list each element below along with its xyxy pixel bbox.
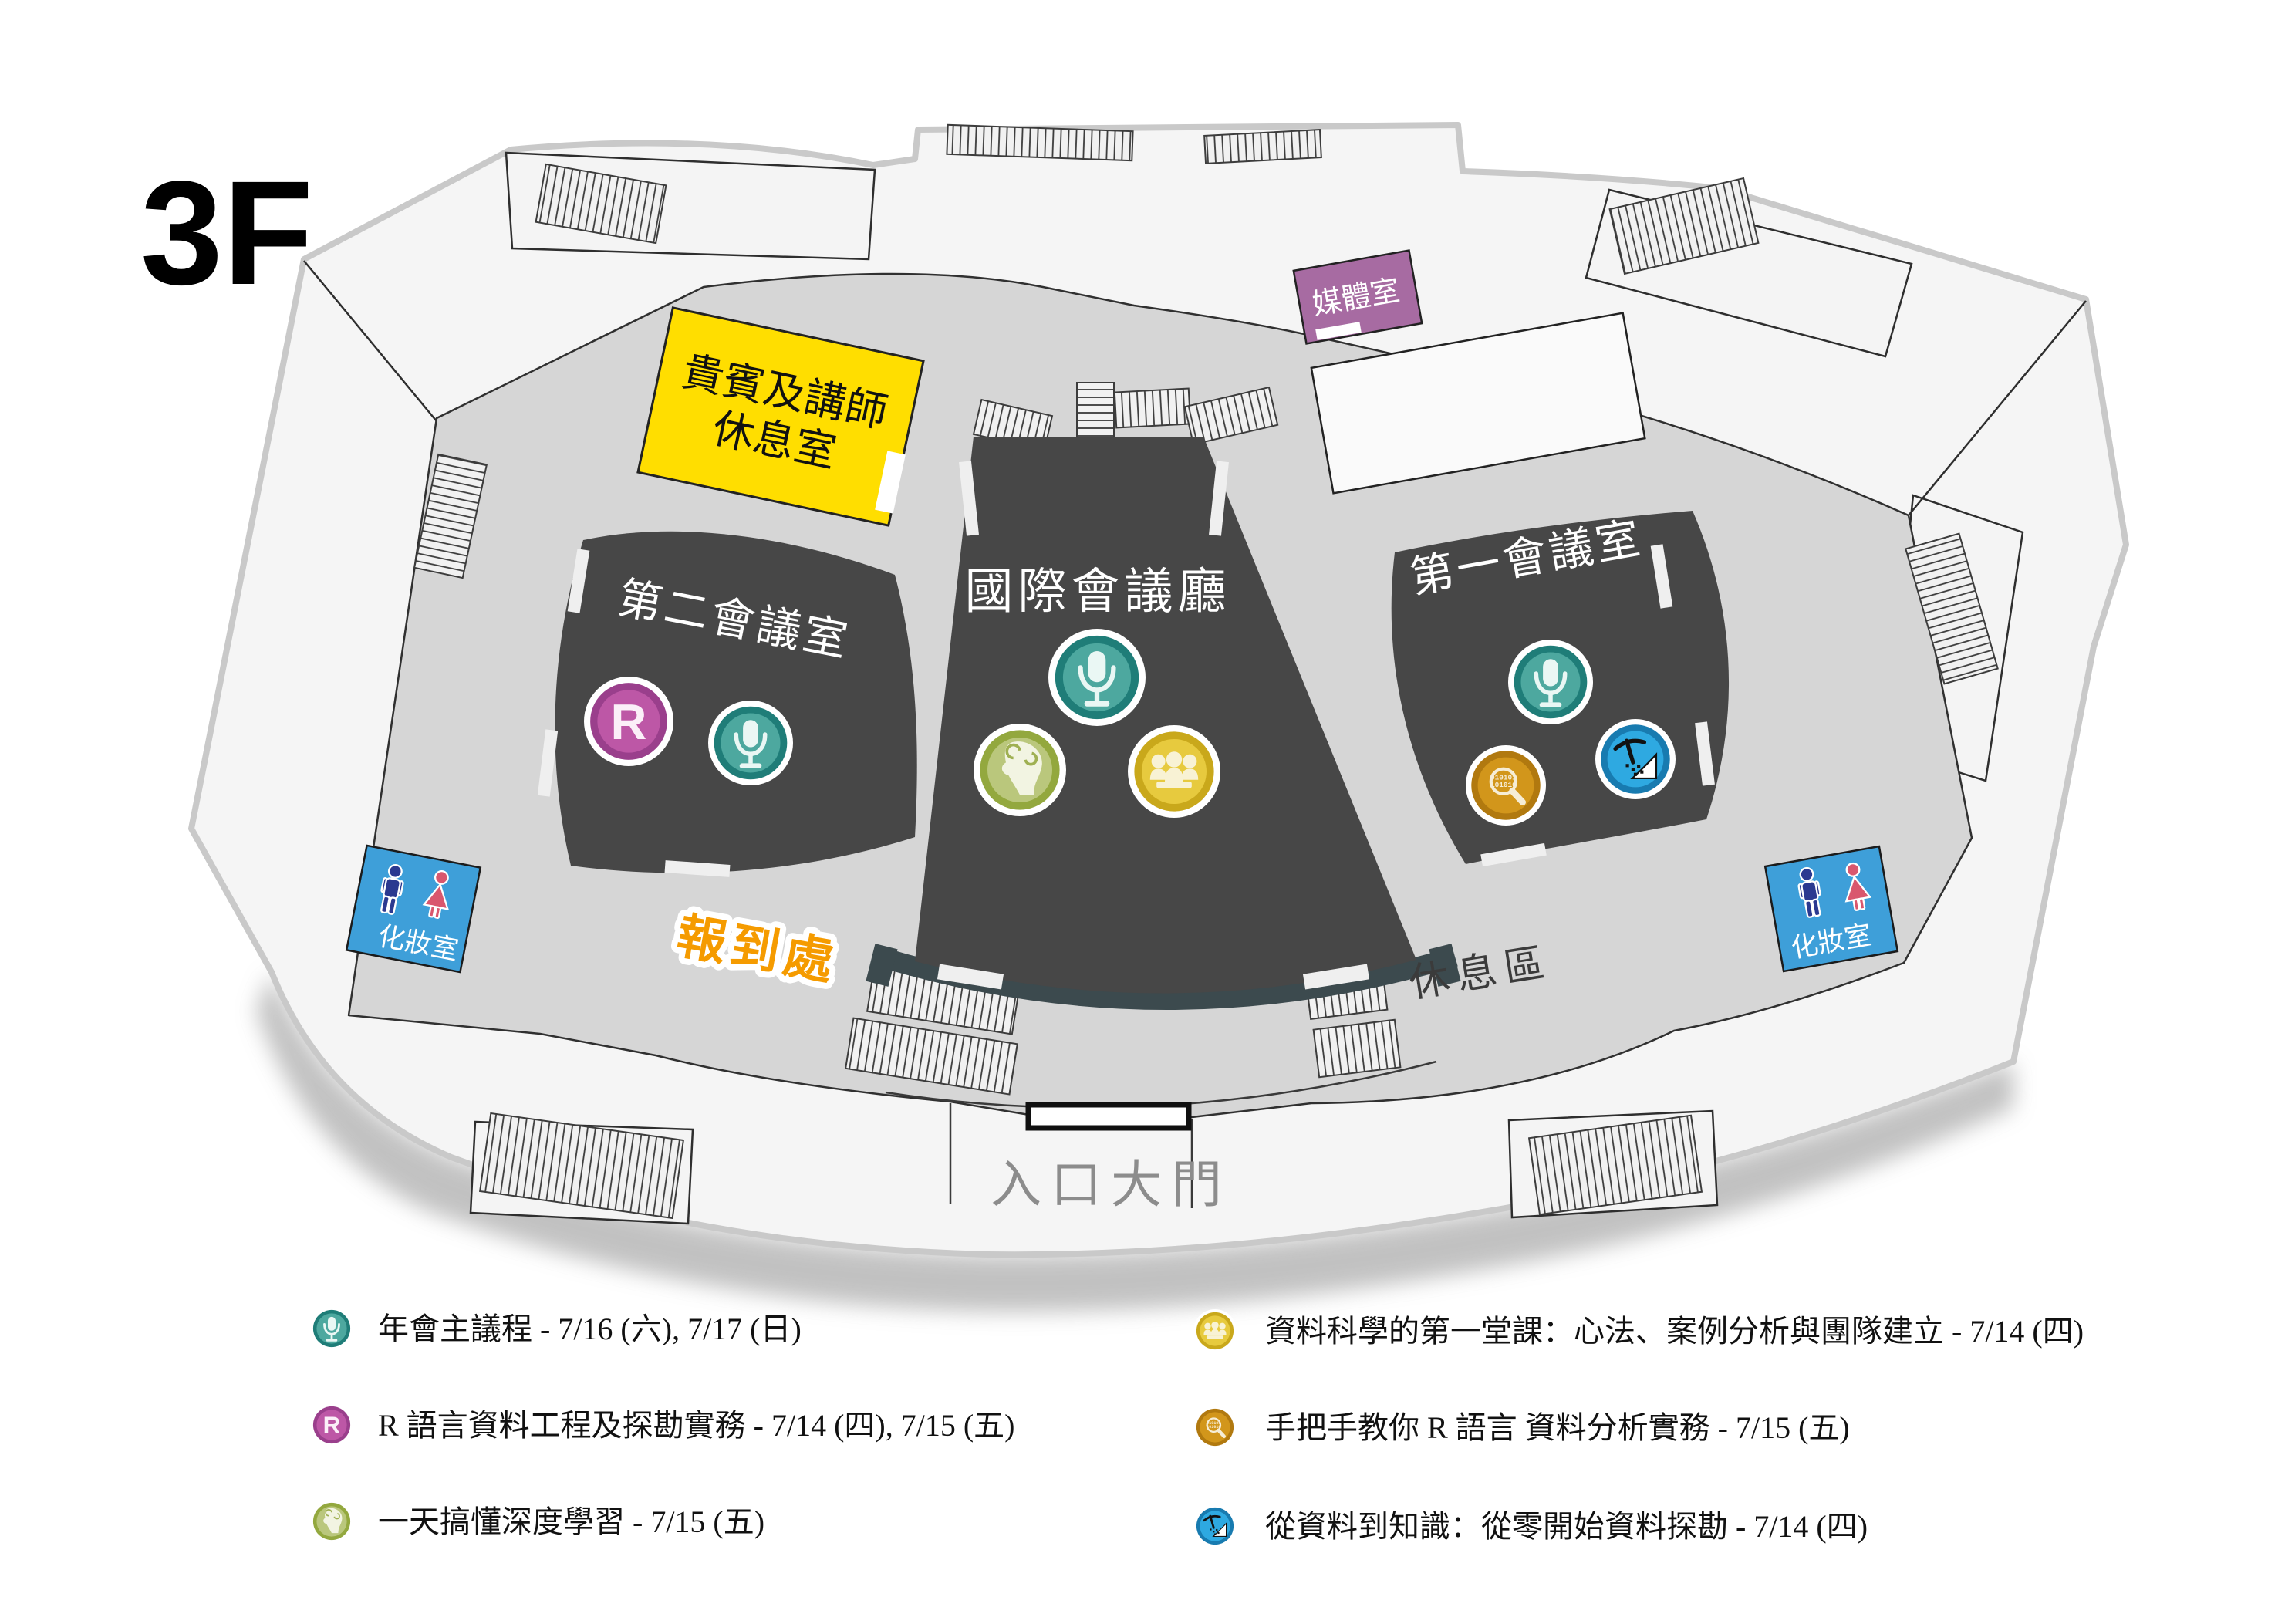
legend-mic-icon	[310, 1307, 353, 1350]
stairs-top-center-a	[947, 125, 1132, 160]
room1-mining-icon	[1595, 719, 1676, 799]
room2-mic-icon	[708, 701, 793, 785]
stairs-top-center-b	[1204, 130, 1321, 164]
stage-ladder	[1077, 383, 1114, 440]
legend-item-r-analysis: 手把手教你 R 語言 資料分析實務 - 7/15 (五)	[1193, 1406, 1850, 1449]
legend-mining-icon	[1193, 1504, 1237, 1548]
hall-brain-icon	[974, 724, 1066, 816]
legend-item-deep-learning: 一天搞懂深度學習 - 7/15 (五)	[310, 1500, 764, 1543]
room1-mic-icon	[1508, 640, 1593, 724]
restroom-right: 化妝室	[1765, 846, 1898, 971]
entrance-label: 入口大門	[991, 1156, 1231, 1213]
legend-people-icon	[1193, 1309, 1237, 1352]
legend-item-first-class: 資料科學的第一堂課：心法、案例分析與團隊建立 - 7/14 (四)	[1193, 1309, 2084, 1352]
legend-magnifier-icon	[1193, 1406, 1237, 1449]
legend-item-data-mining: 從資料到知識：從零開始資料探勘 - 7/14 (四)	[1193, 1504, 1868, 1548]
room-hall-label: 國際會議廳	[965, 565, 1231, 619]
legend-item-r-course: R 語言資料工程及探勘實務 - 7/14 (四), 7/15 (五)	[310, 1403, 1015, 1447]
legend-text-first-class: 資料科學的第一堂課：心法、案例分析與團隊建立 - 7/14 (四)	[1265, 1314, 2084, 1349]
floor-plan-page: R 010101 101010	[0, 0, 2295, 1624]
room2-r-icon	[584, 677, 673, 766]
legend-brain-icon	[310, 1500, 353, 1543]
rest-area-desk-2	[1314, 1020, 1401, 1077]
legend-item-main-program: 年會主議程 - 7/16 (六), 7/17 (日)	[310, 1307, 802, 1350]
legend-r-icon	[310, 1403, 353, 1447]
legend-text-deep-learning: 一天搞懂深度學習 - 7/15 (五)	[378, 1504, 764, 1539]
hall-people-icon	[1128, 725, 1220, 818]
legend-text-main-program: 年會主議程 - 7/16 (六), 7/17 (日)	[378, 1312, 802, 1346]
legend-text-data-mining: 從資料到知識：從零開始資料探勘 - 7/14 (四)	[1265, 1509, 1868, 1544]
legend-text-r-course: R 語言資料工程及探勘實務 - 7/14 (四), 7/15 (五)	[378, 1408, 1015, 1443]
legend-text-r-analysis: 手把手教你 R 語言 資料分析實務 - 7/15 (五)	[1265, 1410, 1850, 1445]
restroom-left: 化妝室	[346, 846, 481, 972]
entrance-door	[1028, 1105, 1189, 1128]
room1-magnifier-icon	[1466, 745, 1546, 826]
stage-railing-mid	[1115, 389, 1190, 428]
legend: 年會主議程 - 7/16 (六), 7/17 (日) R 語言資料工程及探勘實務…	[310, 1307, 2084, 1548]
hall-mic-icon	[1048, 629, 1146, 726]
floor-title: 3F	[140, 150, 313, 316]
